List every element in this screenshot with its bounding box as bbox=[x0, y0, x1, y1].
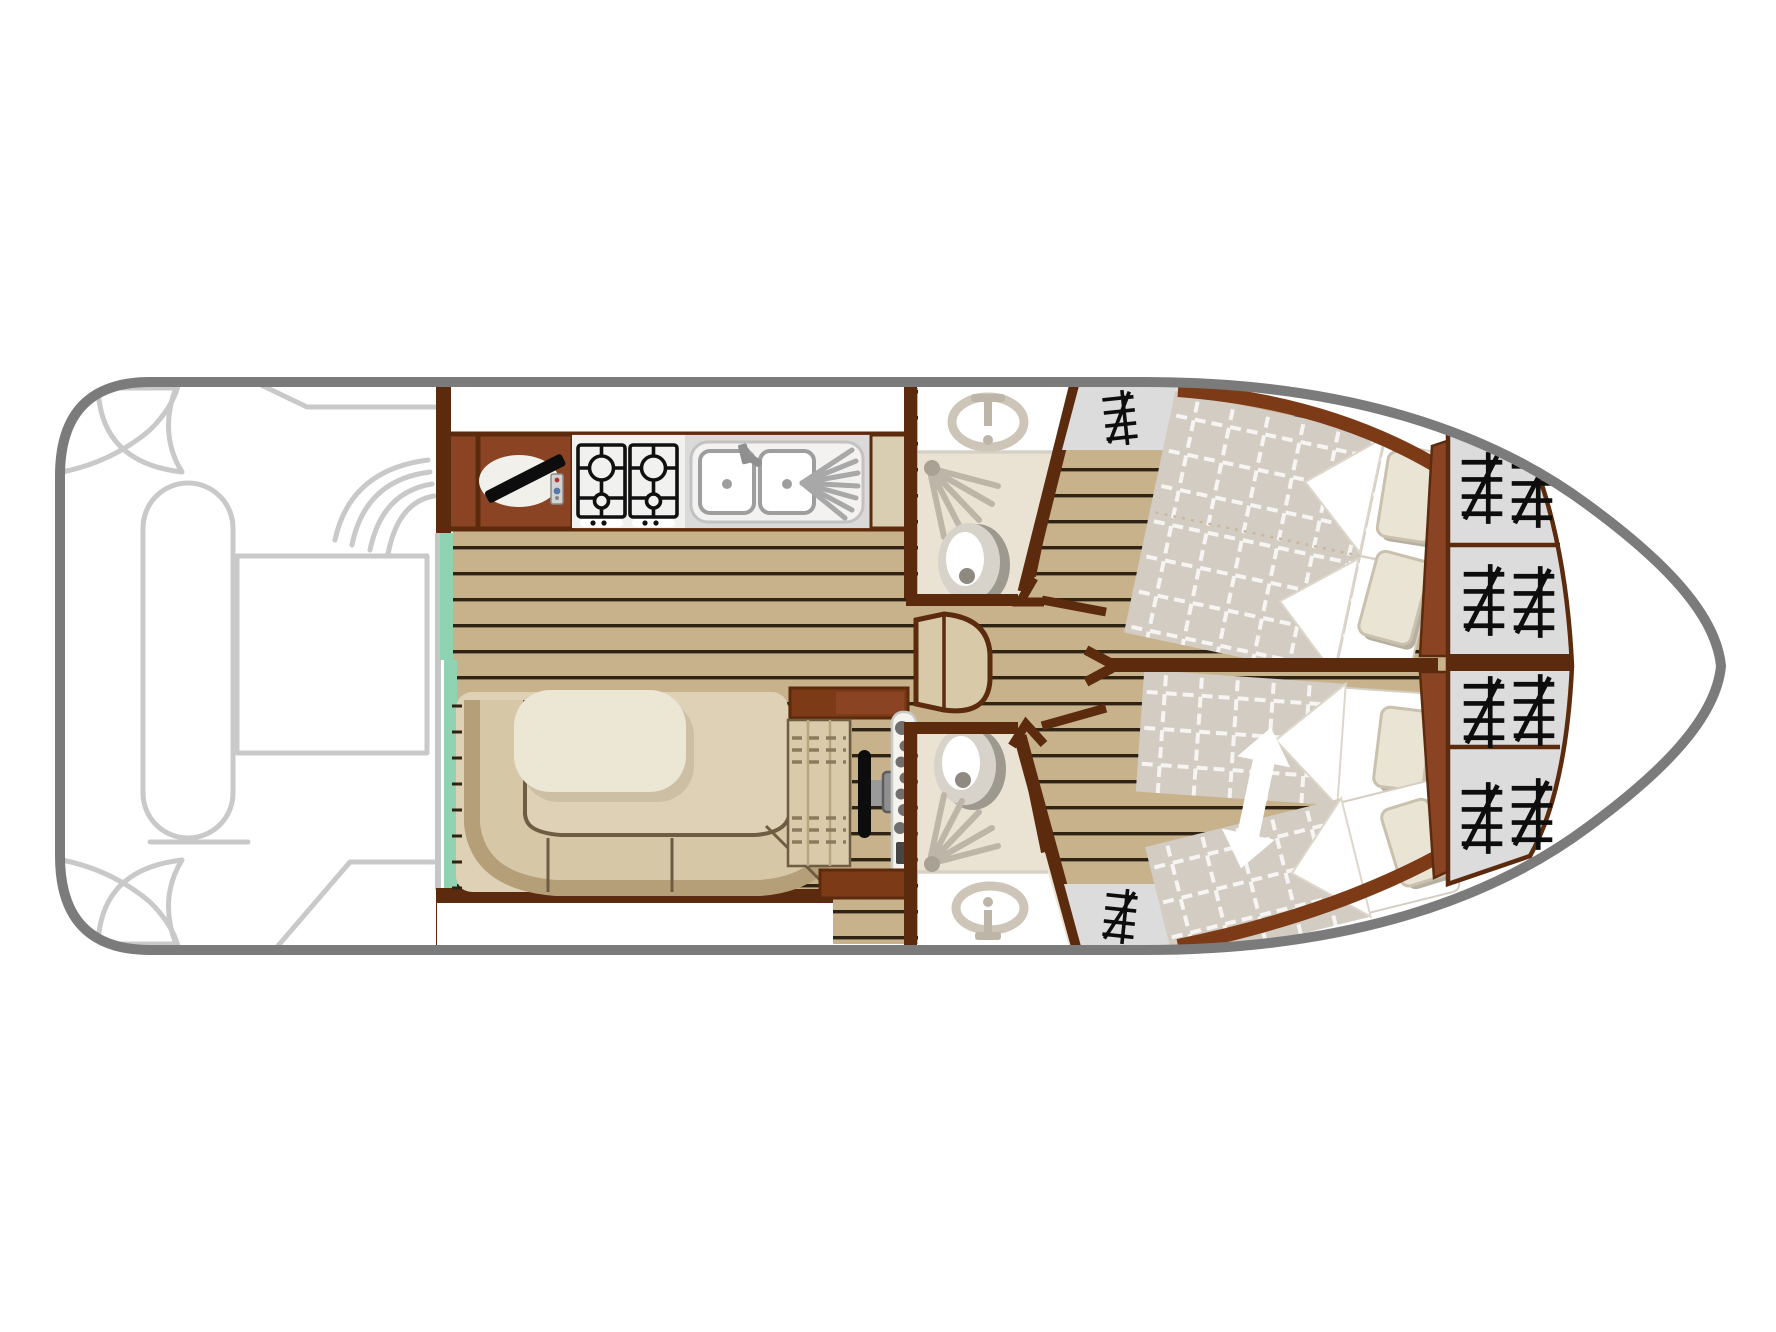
washbasin-icon bbox=[952, 394, 1024, 447]
remote-icon bbox=[551, 474, 563, 504]
helm-cabinet-bottom bbox=[820, 870, 908, 898]
burner-small-icon bbox=[647, 494, 661, 508]
bulkhead-fore bbox=[904, 382, 917, 598]
boat-floorplan-svg bbox=[0, 0, 1776, 1332]
hull-liner-gap bbox=[437, 903, 833, 950]
helm-seat bbox=[788, 720, 850, 866]
sliding-door-glass bbox=[440, 533, 453, 660]
burner-large-icon bbox=[642, 456, 666, 480]
sliding-door-glass bbox=[444, 660, 457, 890]
bathroom-wall bbox=[906, 722, 1018, 734]
bathroom-wall bbox=[906, 594, 1018, 606]
wardrobe-port bbox=[1062, 382, 1180, 450]
tv-cabinet bbox=[479, 435, 572, 528]
dinette bbox=[452, 690, 844, 892]
saloon-fwd-wall bbox=[436, 382, 451, 533]
companionway-steps bbox=[916, 614, 990, 711]
sink-unit bbox=[685, 435, 871, 528]
galley bbox=[447, 378, 908, 530]
cockpit-bench bbox=[143, 483, 233, 838]
burner-large-icon bbox=[590, 456, 614, 480]
gas-hob bbox=[572, 435, 685, 528]
dinette-table bbox=[514, 690, 686, 792]
burner-small-icon bbox=[595, 494, 609, 508]
deck-plan bbox=[0, 0, 1776, 1332]
bulkhead-aft bbox=[904, 722, 917, 950]
galley-cabinet bbox=[449, 435, 477, 528]
cockpit-table bbox=[237, 556, 427, 753]
worktop bbox=[871, 435, 906, 528]
bow-center-wall bbox=[1446, 654, 1573, 671]
